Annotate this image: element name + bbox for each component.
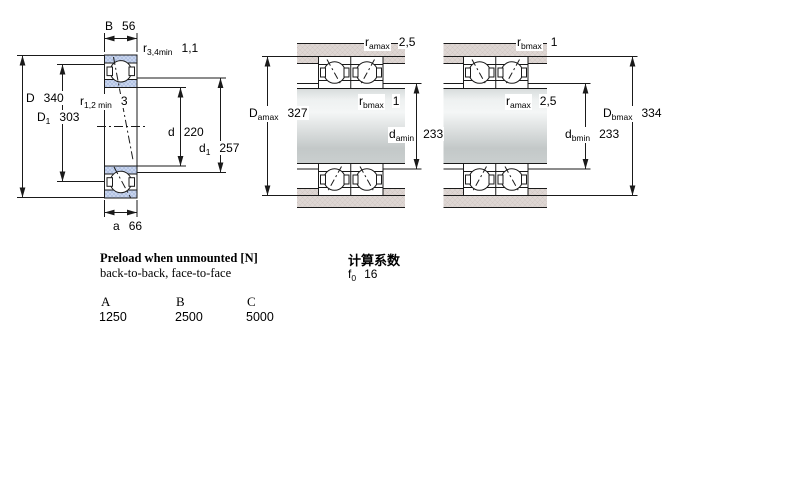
- dim-value: 1: [392, 94, 401, 108]
- f0-subscript: 0: [351, 273, 356, 283]
- dim-label-Damax: Damax 327: [248, 106, 309, 122]
- dim-base: D: [37, 110, 46, 124]
- dim-value: 2,5: [398, 35, 417, 49]
- dim-label-r-bmax-right: rbmax 1: [516, 35, 558, 51]
- dim-value: 66: [128, 219, 143, 233]
- dim-base: B: [105, 19, 113, 33]
- dim-subscript: amax: [510, 100, 531, 110]
- dim-base: a: [113, 219, 120, 233]
- figure-pair-arrangement-a: [262, 43, 422, 208]
- dim-subscript: bmin: [572, 133, 590, 143]
- dim-label-r-amax-right: ramax 2,5: [505, 94, 557, 110]
- dim-subscript: amax: [258, 112, 279, 122]
- preload-value-B: 2500: [175, 310, 203, 324]
- preload-col-header-A: A: [101, 294, 110, 310]
- dim-label-r-amax-mid: ramax 2,5: [364, 35, 416, 51]
- dim-value: 327: [286, 106, 308, 120]
- dim-label-Dbmax: Dbmax 334: [602, 106, 663, 122]
- preload-col-header-B: B: [176, 294, 185, 310]
- bearing-datasheet-drawing: B 56 r3,4min 1,1 D 340 D1 303 r1,2 min 3…: [0, 0, 800, 500]
- dim-value: 233: [598, 127, 620, 141]
- preload-title: Preload when unmounted [N]: [100, 251, 258, 266]
- dim-subscript: amin: [396, 133, 414, 143]
- dim-label-d: d 220: [167, 125, 205, 139]
- figure-pair-arrangement-b: [444, 43, 638, 208]
- dim-subscript: 1: [206, 147, 211, 157]
- dim-label-D: D 340: [25, 91, 65, 105]
- dim-value: 220: [183, 125, 205, 139]
- dim-label-d1: d1 257: [198, 141, 240, 157]
- dim-value: 2,5: [539, 94, 558, 108]
- dim-value: 340: [43, 91, 65, 105]
- dim-base: d: [199, 141, 206, 155]
- preload-subtitle: back-to-back, face-to-face: [100, 266, 231, 281]
- dim-value: 233: [422, 127, 444, 141]
- dim-subscript: amax: [369, 41, 390, 51]
- preload-value-C: 5000: [246, 310, 274, 324]
- dim-value: 1: [550, 35, 559, 49]
- dim-value: 257: [218, 141, 240, 155]
- dim-label-r34: r3,4min 1,1: [142, 41, 199, 57]
- dim-subscript: bmax: [612, 112, 633, 122]
- dim-subscript: bmax: [521, 41, 542, 51]
- dim-value: 56: [121, 19, 136, 33]
- dim-subscript: 3,4min: [147, 47, 173, 57]
- f0-value: 16: [364, 267, 377, 281]
- dim-value: 303: [58, 110, 80, 124]
- dim-subscript: 1,2 min: [84, 100, 112, 110]
- dim-label-D1: D1 303: [36, 110, 80, 126]
- dim-value: 1,1: [181, 41, 200, 55]
- dim-base: D: [249, 106, 258, 120]
- dim-label-a: a 66: [112, 219, 143, 233]
- dim-label-dbmin: dbmin 233: [564, 127, 620, 143]
- dim-subscript: 1: [46, 116, 51, 126]
- preload-value-A: 1250: [99, 310, 127, 324]
- dim-label-B: B 56: [104, 19, 136, 33]
- dim-label-r12: r1,2 min 3: [79, 94, 129, 110]
- dim-value: 334: [640, 106, 662, 120]
- dim-base: D: [603, 106, 612, 120]
- dim-label-r-bmax-mid: rbmax 1: [358, 94, 400, 110]
- dim-base: d: [565, 127, 572, 141]
- dim-base: D: [26, 91, 35, 105]
- calculation-factor-f0: f016: [348, 267, 377, 283]
- dim-base: d: [168, 125, 175, 139]
- dim-value: 3: [120, 94, 129, 108]
- dim-base: d: [389, 127, 396, 141]
- preload-col-header-C: C: [247, 294, 256, 310]
- dim-label-damin: damin 233: [388, 127, 444, 143]
- dim-subscript: bmax: [363, 100, 384, 110]
